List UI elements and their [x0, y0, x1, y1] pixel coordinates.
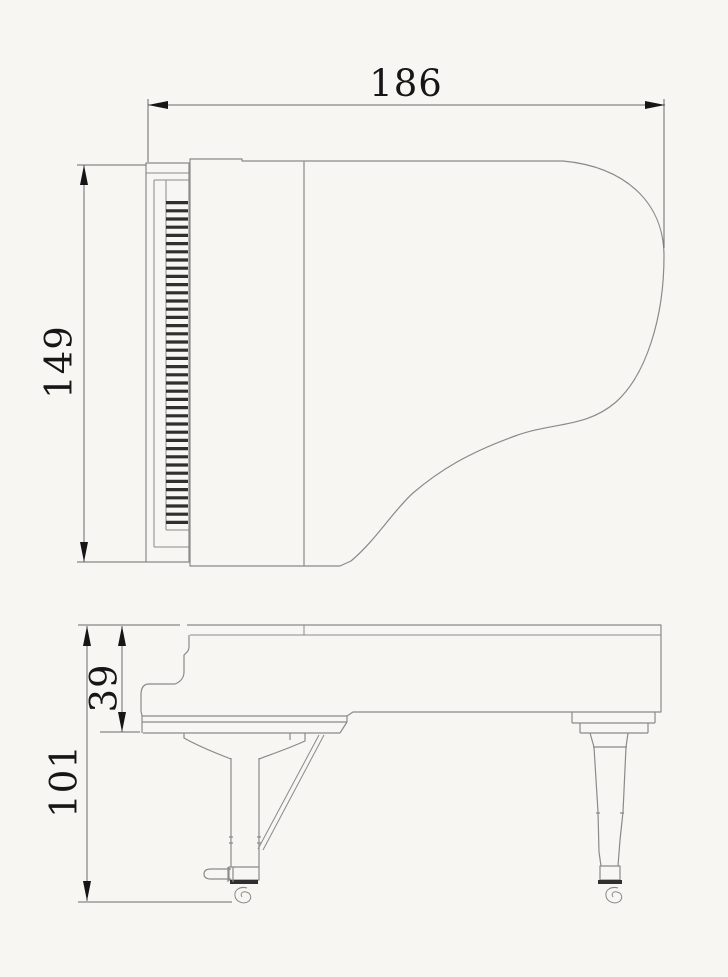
width-value: 186 — [369, 62, 443, 105]
cheek-profile — [141, 635, 189, 716]
rear-leg-foot — [600, 866, 620, 880]
front-leg — [229, 758, 261, 867]
dimension-depth-extension-lines — [77, 165, 146, 562]
side-view — [141, 625, 661, 903]
keyboard-block — [146, 163, 189, 562]
case-profile — [142, 625, 661, 716]
arrow-width-left — [148, 101, 168, 109]
rear-leg-block — [572, 712, 655, 747]
front-leg-ferrule — [230, 880, 258, 884]
top-view — [146, 159, 664, 566]
arrow-total-bottom — [83, 881, 91, 901]
front-caster — [235, 887, 251, 902]
arrow-depth-bottom — [80, 542, 88, 562]
dimension-width-extension-lines — [148, 99, 664, 248]
arrow-depth-top — [80, 165, 88, 185]
rim-height-value: 39 — [83, 663, 126, 712]
dimension-depth — [77, 165, 146, 562]
front-leg-bracket — [184, 733, 305, 759]
arrow-rim-bottom — [118, 712, 126, 732]
lyre-brace — [258, 735, 324, 850]
piano-body-outline — [190, 159, 664, 566]
drawing-canvas: 186 149 39 101 — [0, 0, 728, 977]
rear-leg — [594, 747, 626, 866]
arrow-rim-top — [118, 626, 126, 646]
rear-leg-ferrule — [598, 880, 622, 884]
dimensions: 186 149 39 101 — [38, 62, 666, 902]
keybed — [142, 716, 347, 733]
depth-value: 149 — [38, 325, 81, 399]
total-height-value: 101 — [43, 744, 86, 818]
arrow-total-top — [83, 626, 91, 646]
piano-dimension-drawing: 186 149 39 101 — [0, 0, 728, 977]
rear-caster — [606, 887, 622, 902]
dimension-width — [148, 99, 665, 248]
dimension-arrowheads — [80, 101, 665, 901]
arrow-width-right — [645, 101, 665, 109]
dimension-labels: 186 149 39 101 — [38, 62, 443, 818]
